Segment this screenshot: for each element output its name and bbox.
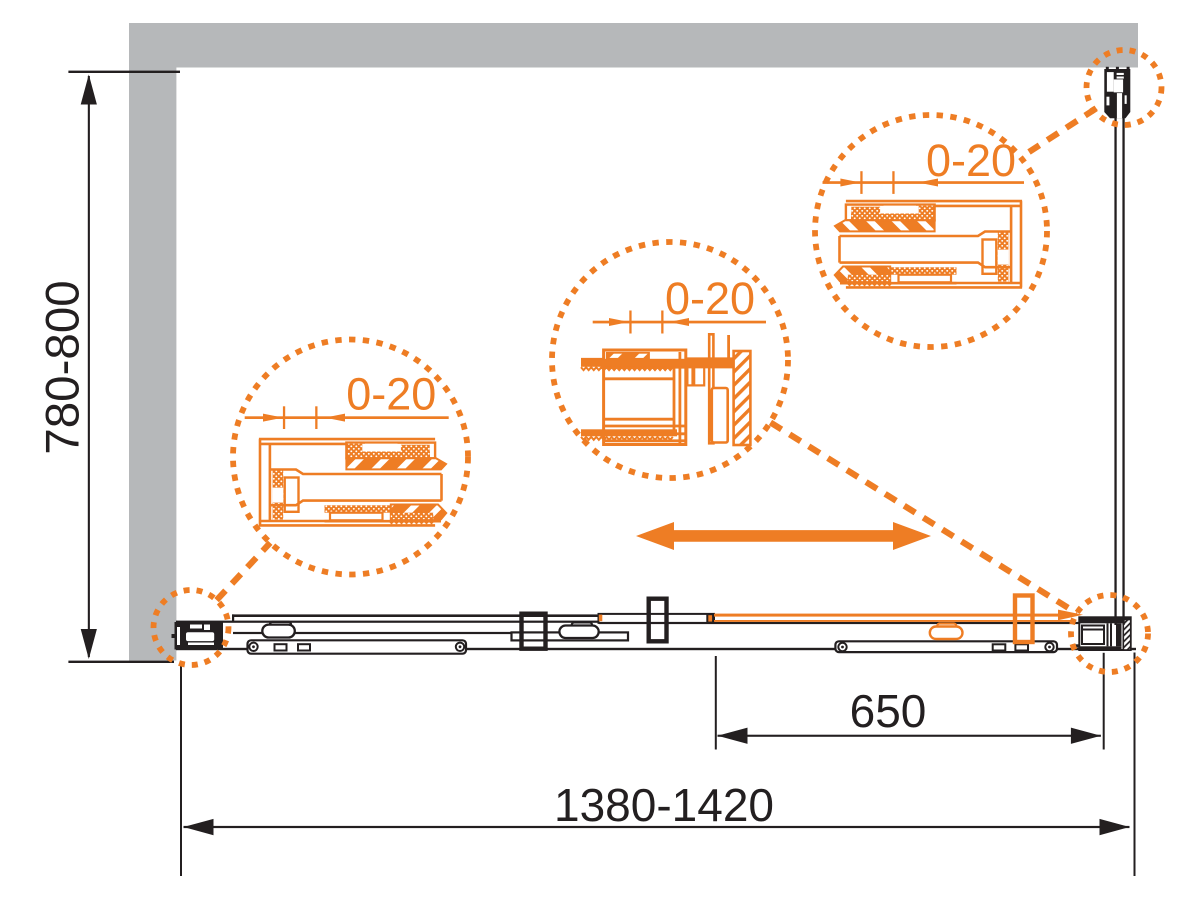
svg-text:0-20: 0-20 [346,369,436,420]
svg-text:0-20: 0-20 [926,135,1016,186]
svg-text:780-800: 780-800 [37,280,90,454]
svg-text:650: 650 [850,685,927,737]
svg-text:1380-1420: 1380-1420 [554,779,774,831]
svg-text:0-20: 0-20 [665,273,755,324]
